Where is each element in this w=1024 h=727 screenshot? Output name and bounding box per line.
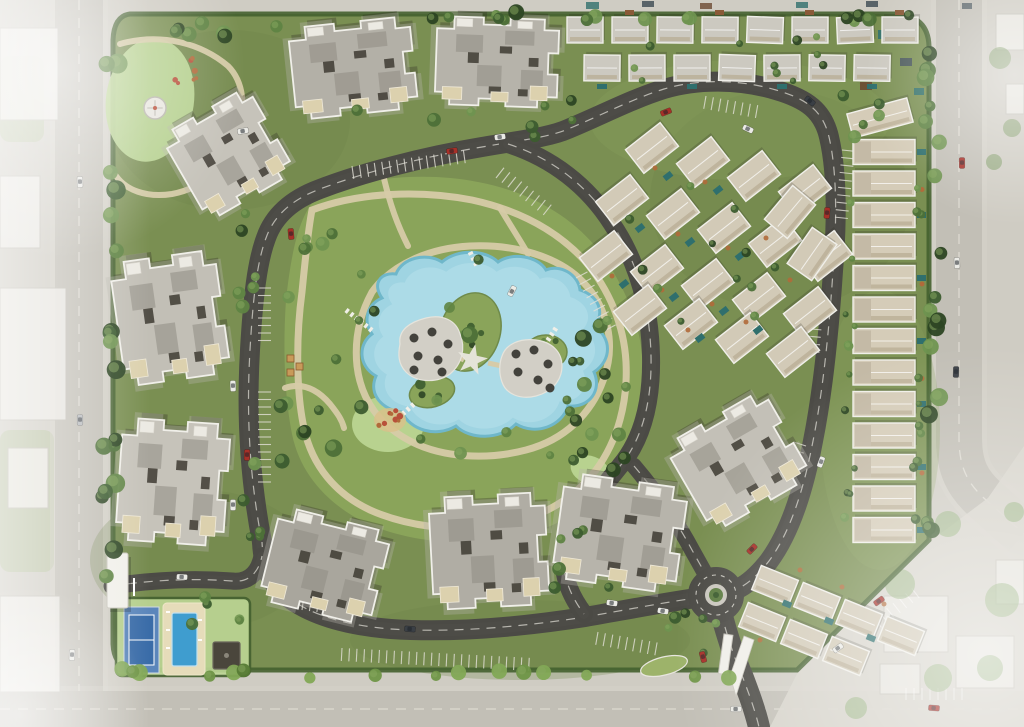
orange-shrub: [676, 232, 681, 237]
tree-highlight: [228, 666, 237, 675]
roof-panel: [477, 65, 502, 87]
car-windshield: [289, 231, 293, 236]
light-well: [590, 518, 603, 532]
tree-highlight: [237, 301, 245, 309]
tree-highlight: [205, 672, 211, 678]
tree-highlight: [237, 226, 244, 233]
rowhouse-unit: [853, 294, 917, 322]
tree-highlight: [924, 340, 933, 349]
rowhouse-court: [855, 331, 871, 352]
roof-panel: [170, 269, 198, 292]
light-well: [169, 294, 181, 305]
tree-highlight: [356, 401, 364, 409]
tree-highlight: [428, 114, 436, 122]
tree-highlight: [538, 666, 546, 674]
tree-highlight: [731, 206, 735, 210]
tree-highlight: [547, 452, 551, 456]
tree-highlight: [924, 305, 932, 313]
pool-lounger: [166, 647, 170, 649]
orange-shrub: [920, 282, 925, 287]
tree-highlight: [860, 121, 865, 126]
light-well: [384, 58, 395, 68]
tree-highlight: [315, 406, 320, 411]
tree-highlight: [839, 91, 845, 97]
tree-highlight: [619, 453, 626, 460]
tree-highlight: [815, 52, 819, 56]
deck-table: [434, 356, 443, 365]
car-windshield: [231, 502, 235, 506]
tree-highlight: [605, 584, 610, 589]
tree-highlight: [748, 283, 753, 288]
tree-highlight: [554, 563, 562, 571]
rooftop-object: [796, 2, 808, 8]
tree-highlight: [603, 317, 608, 322]
car-windshield: [609, 601, 614, 606]
terrace: [440, 586, 459, 603]
tree-highlight: [327, 441, 337, 451]
tree-highlight: [252, 273, 257, 278]
pool-lounger: [198, 639, 202, 641]
car-white: [606, 599, 618, 606]
yard-pergola: [715, 10, 724, 15]
orange-shrub: [710, 302, 715, 307]
tree-highlight: [687, 183, 691, 187]
light-well: [519, 542, 529, 554]
orange-shrub: [610, 274, 615, 279]
parking-stall-stripe: [409, 652, 410, 665]
rooftop-object: [642, 1, 654, 7]
island-bush: [444, 302, 455, 313]
parking-stall-stripe: [356, 649, 357, 662]
terrace: [302, 99, 323, 114]
tree-highlight: [272, 21, 279, 28]
tree-highlight: [678, 318, 682, 322]
tree-highlight: [930, 292, 937, 299]
tree-highlight: [573, 529, 579, 535]
top-villa: [702, 14, 740, 43]
parking-stall-stripe: [349, 648, 350, 661]
island-bush: [419, 391, 426, 398]
pergola-seat: [296, 363, 303, 370]
villa-pool: [687, 84, 697, 89]
car-windshield: [240, 129, 245, 134]
tree-highlight: [639, 13, 647, 21]
light-well: [490, 530, 502, 540]
tree-highlight: [793, 36, 798, 41]
tree-highlight: [284, 292, 291, 299]
rowhouse-court: [855, 142, 871, 163]
tree-highlight: [647, 43, 652, 48]
roof-panel: [596, 534, 624, 563]
pavilion-roof-vent: [224, 653, 229, 658]
roof-edge: [677, 75, 707, 79]
light-well: [529, 58, 539, 67]
orange-shrub: [726, 246, 731, 251]
parking-stall-stripe: [431, 653, 432, 666]
car-windshield: [825, 210, 829, 215]
tree-highlight: [200, 592, 206, 598]
tree-highlight: [567, 96, 573, 102]
rowhouse-unit: [853, 231, 917, 259]
yard-pergola: [805, 10, 814, 15]
tree-highlight: [356, 317, 361, 322]
roof-panel: [154, 322, 179, 354]
car-red: [244, 449, 250, 460]
villa-pool: [777, 84, 787, 89]
lagoon-deck: [399, 317, 463, 381]
terrace: [523, 578, 540, 597]
tree-highlight: [463, 328, 472, 337]
roof-edge: [812, 75, 842, 80]
light-well: [354, 50, 367, 59]
tree-highlight: [303, 235, 308, 240]
tree-highlight: [790, 78, 794, 82]
tree-highlight: [358, 271, 363, 276]
tree-highlight: [773, 70, 778, 75]
roof-edge: [660, 37, 690, 41]
roof-box: [457, 18, 473, 26]
island-bush: [553, 338, 559, 344]
rowhouse-court: [855, 205, 871, 226]
roof-edge: [705, 37, 735, 41]
island-bush: [431, 395, 442, 406]
car-windshield: [407, 627, 412, 631]
parking-stall-stripe: [514, 657, 515, 670]
play-equipment: [393, 408, 398, 413]
tree-highlight: [854, 11, 861, 18]
tree-highlight: [370, 307, 376, 313]
tree-highlight: [737, 41, 741, 45]
roof-box: [307, 27, 324, 37]
roof-edge: [570, 37, 600, 41]
tree-highlight: [654, 285, 659, 290]
pergola-seat: [287, 355, 294, 362]
parking-stall-stripe: [386, 650, 387, 663]
tree-highlight: [936, 248, 943, 255]
roof-panel: [153, 486, 177, 517]
tree-highlight: [814, 34, 818, 38]
rowhouse-court: [855, 173, 871, 194]
tree-highlight: [845, 342, 850, 347]
roof-box: [584, 477, 601, 489]
light-well: [176, 460, 187, 470]
light-well: [323, 61, 335, 73]
light-well: [189, 520, 198, 530]
roof-edge: [632, 75, 662, 79]
terrace: [491, 92, 508, 102]
terrace: [486, 588, 503, 601]
roof-panel: [181, 439, 208, 460]
site-plan-svg: [0, 0, 1024, 727]
deck-table: [438, 368, 447, 377]
yard-pergola: [625, 10, 634, 15]
tree-highlight: [305, 673, 311, 679]
car-windshield: [955, 260, 959, 265]
tree-highlight: [238, 665, 246, 673]
parking-stall-stripe: [371, 650, 372, 663]
tree-highlight: [613, 429, 621, 437]
play-equipment: [376, 423, 381, 428]
tree-highlight: [607, 464, 615, 472]
tree-highlight: [683, 14, 689, 20]
parking-stall-stripe: [484, 655, 485, 668]
car-windshield: [449, 149, 454, 154]
tree-highlight: [236, 617, 241, 622]
rooftop-object: [700, 3, 712, 9]
tree-highlight: [820, 62, 825, 67]
tree-highlight: [276, 455, 284, 463]
parking-stall-stripe: [491, 656, 492, 669]
tree-highlight: [594, 320, 602, 328]
tree-highlight: [299, 426, 306, 433]
roof-panel: [471, 555, 496, 583]
light-well: [468, 52, 479, 63]
terrace: [608, 568, 627, 582]
tree-highlight: [569, 358, 574, 363]
tree-highlight: [639, 78, 643, 82]
orange-shrub: [744, 320, 749, 325]
tree-highlight: [428, 14, 434, 20]
parking-stall-stripe: [341, 648, 342, 661]
roof-box: [179, 256, 193, 268]
rowhouse-pool: [917, 275, 926, 281]
deck-table: [530, 346, 539, 355]
tree-highlight: [709, 241, 713, 245]
light-well: [518, 89, 528, 96]
parking-stall-stripe: [401, 651, 402, 664]
tree-highlight: [626, 216, 631, 221]
top-villa: [764, 52, 802, 81]
rowhouse-court: [855, 268, 871, 289]
tree-highlight: [417, 435, 422, 440]
tree-highlight: [518, 666, 526, 674]
tree-highlight: [847, 200, 851, 204]
car-white: [494, 133, 506, 140]
deck-table: [428, 328, 437, 337]
light-well: [500, 46, 512, 53]
tree-highlight: [576, 331, 585, 340]
tree-highlight: [187, 619, 194, 626]
tree-highlight: [587, 429, 594, 436]
roof-edge: [587, 75, 617, 79]
roof-panel: [505, 31, 535, 46]
tree-highlight: [332, 355, 338, 361]
car-windshield: [231, 383, 235, 388]
tree-highlight: [550, 582, 557, 589]
tree-highlight: [571, 415, 578, 422]
rowhouse-unit: [853, 326, 917, 354]
tree-highlight: [772, 264, 777, 269]
masterplan-stage: [0, 0, 1024, 727]
car-dark: [404, 626, 415, 632]
terrace: [442, 87, 462, 100]
tree-highlight: [932, 314, 941, 323]
tree-highlight: [631, 65, 635, 69]
rooftop-object: [866, 1, 878, 7]
car-red: [824, 207, 831, 218]
tree-highlight: [370, 670, 377, 677]
tree-highlight: [249, 283, 256, 290]
tree-highlight: [557, 535, 562, 540]
rowhouse-court: [855, 299, 871, 320]
tree-highlight: [432, 672, 438, 678]
play-equipment: [382, 421, 387, 426]
rowhouse-unit: [853, 200, 917, 228]
pergola-seat: [287, 369, 294, 376]
light-well: [461, 541, 472, 555]
tree-highlight: [445, 13, 451, 19]
tree-highlight: [353, 106, 359, 112]
tree-highlight: [863, 13, 871, 21]
car-windshield: [660, 609, 665, 614]
terrace: [530, 86, 548, 101]
tree-highlight: [742, 249, 747, 254]
tree-highlight: [275, 400, 283, 408]
deck-table: [514, 368, 523, 377]
tree-highlight: [256, 528, 262, 534]
parking-stall-stripe: [461, 654, 462, 667]
play-equipment: [397, 413, 404, 420]
tree-highlight: [328, 229, 334, 235]
orange-shrub: [788, 278, 793, 283]
car-windshield: [179, 575, 184, 579]
car-white: [230, 500, 236, 511]
island-bush: [478, 330, 484, 336]
parking-stall-stripe: [364, 649, 365, 662]
rooftop-object: [586, 2, 599, 9]
parking-stall-stripe: [379, 650, 380, 663]
car-white: [954, 257, 960, 268]
tree-highlight: [249, 458, 256, 465]
tree-highlight: [622, 383, 627, 388]
tree-highlight: [502, 428, 508, 434]
apartment-block-3: [428, 10, 566, 113]
tree-highlight: [541, 102, 546, 107]
roof-box: [518, 21, 533, 29]
car-windshield: [497, 135, 502, 140]
parking-stall-stripe: [454, 654, 455, 667]
parking-stall-stripe: [469, 655, 470, 668]
tree-highlight: [317, 238, 325, 246]
tree-highlight: [852, 324, 855, 327]
tree-highlight: [578, 378, 586, 386]
tree-highlight: [639, 266, 644, 271]
car-red: [446, 147, 458, 154]
parking-stall-stripe: [424, 652, 425, 665]
tree-highlight: [670, 613, 677, 620]
car-red: [288, 228, 295, 239]
tree-highlight: [604, 394, 610, 400]
roof-panel: [580, 496, 610, 521]
play-equipment: [397, 419, 401, 423]
rowhouse-unit: [853, 263, 917, 291]
pool-lounger: [198, 619, 202, 621]
deck-table: [544, 360, 553, 369]
top-villa: [674, 52, 712, 81]
terrace: [346, 598, 365, 617]
light-well: [512, 583, 522, 592]
terrace: [172, 358, 189, 374]
tree-highlight: [842, 13, 849, 20]
tree-highlight: [734, 276, 738, 280]
top-villa: [719, 51, 758, 81]
roof-box: [505, 497, 519, 507]
tree-highlight: [242, 210, 247, 215]
tree-highlight: [563, 396, 568, 401]
tree-highlight: [493, 665, 502, 674]
pool-lounger: [166, 629, 170, 631]
tree-highlight: [843, 312, 846, 315]
parking-stall-stripe: [476, 655, 477, 668]
tree-highlight: [569, 117, 574, 122]
roof-panel: [456, 34, 483, 53]
tree-highlight: [510, 6, 519, 15]
villa-pool: [597, 84, 607, 89]
terrace: [165, 523, 181, 537]
orange-shrub: [686, 328, 691, 333]
roof-box: [194, 426, 208, 437]
tree-highlight: [582, 15, 589, 22]
deck-table: [444, 340, 453, 349]
tree-highlight: [600, 369, 606, 375]
car-windshield: [245, 452, 249, 457]
parking-stall-stripe: [446, 653, 447, 666]
orange-shrub: [764, 236, 769, 241]
tree-highlight: [239, 495, 246, 502]
car-white: [176, 574, 187, 580]
roof-panel: [357, 31, 388, 49]
car-white: [230, 380, 236, 391]
deck-table: [512, 350, 521, 359]
tree-highlight: [913, 208, 918, 213]
deck-table: [534, 376, 543, 385]
tree-highlight: [569, 456, 575, 462]
rowhouse-court: [855, 236, 871, 257]
top-villa: [747, 13, 786, 43]
tree-highlight: [751, 312, 756, 317]
roof-panel: [334, 71, 361, 96]
terrace: [648, 565, 668, 584]
light-well: [378, 92, 388, 100]
tree-highlight: [247, 533, 252, 538]
tree-highlight: [582, 671, 588, 677]
tree-highlight: [527, 122, 534, 129]
tree-highlight: [455, 448, 462, 455]
roof-panel: [448, 518, 475, 542]
tree-highlight: [474, 256, 480, 262]
light-well: [651, 531, 662, 543]
roof-box: [645, 486, 661, 496]
parking-stall-stripe: [439, 653, 440, 666]
parking-stall-stripe: [416, 652, 417, 665]
roof-panel: [309, 42, 338, 63]
orange-shrub: [703, 180, 708, 185]
tree-highlight: [771, 62, 776, 67]
tree-highlight: [300, 244, 307, 251]
roof-edge: [615, 37, 645, 41]
deck-table: [410, 366, 419, 375]
tree-highlight: [452, 666, 460, 674]
tree-highlight: [494, 14, 500, 20]
light-well: [194, 351, 204, 362]
roof-ridge: [812, 68, 842, 69]
terrace: [389, 86, 408, 102]
light-well: [624, 514, 637, 524]
tree-highlight: [467, 108, 472, 113]
parking-stall-stripe: [394, 651, 395, 664]
tree-highlight: [566, 407, 572, 413]
tree-highlight: [234, 288, 241, 295]
